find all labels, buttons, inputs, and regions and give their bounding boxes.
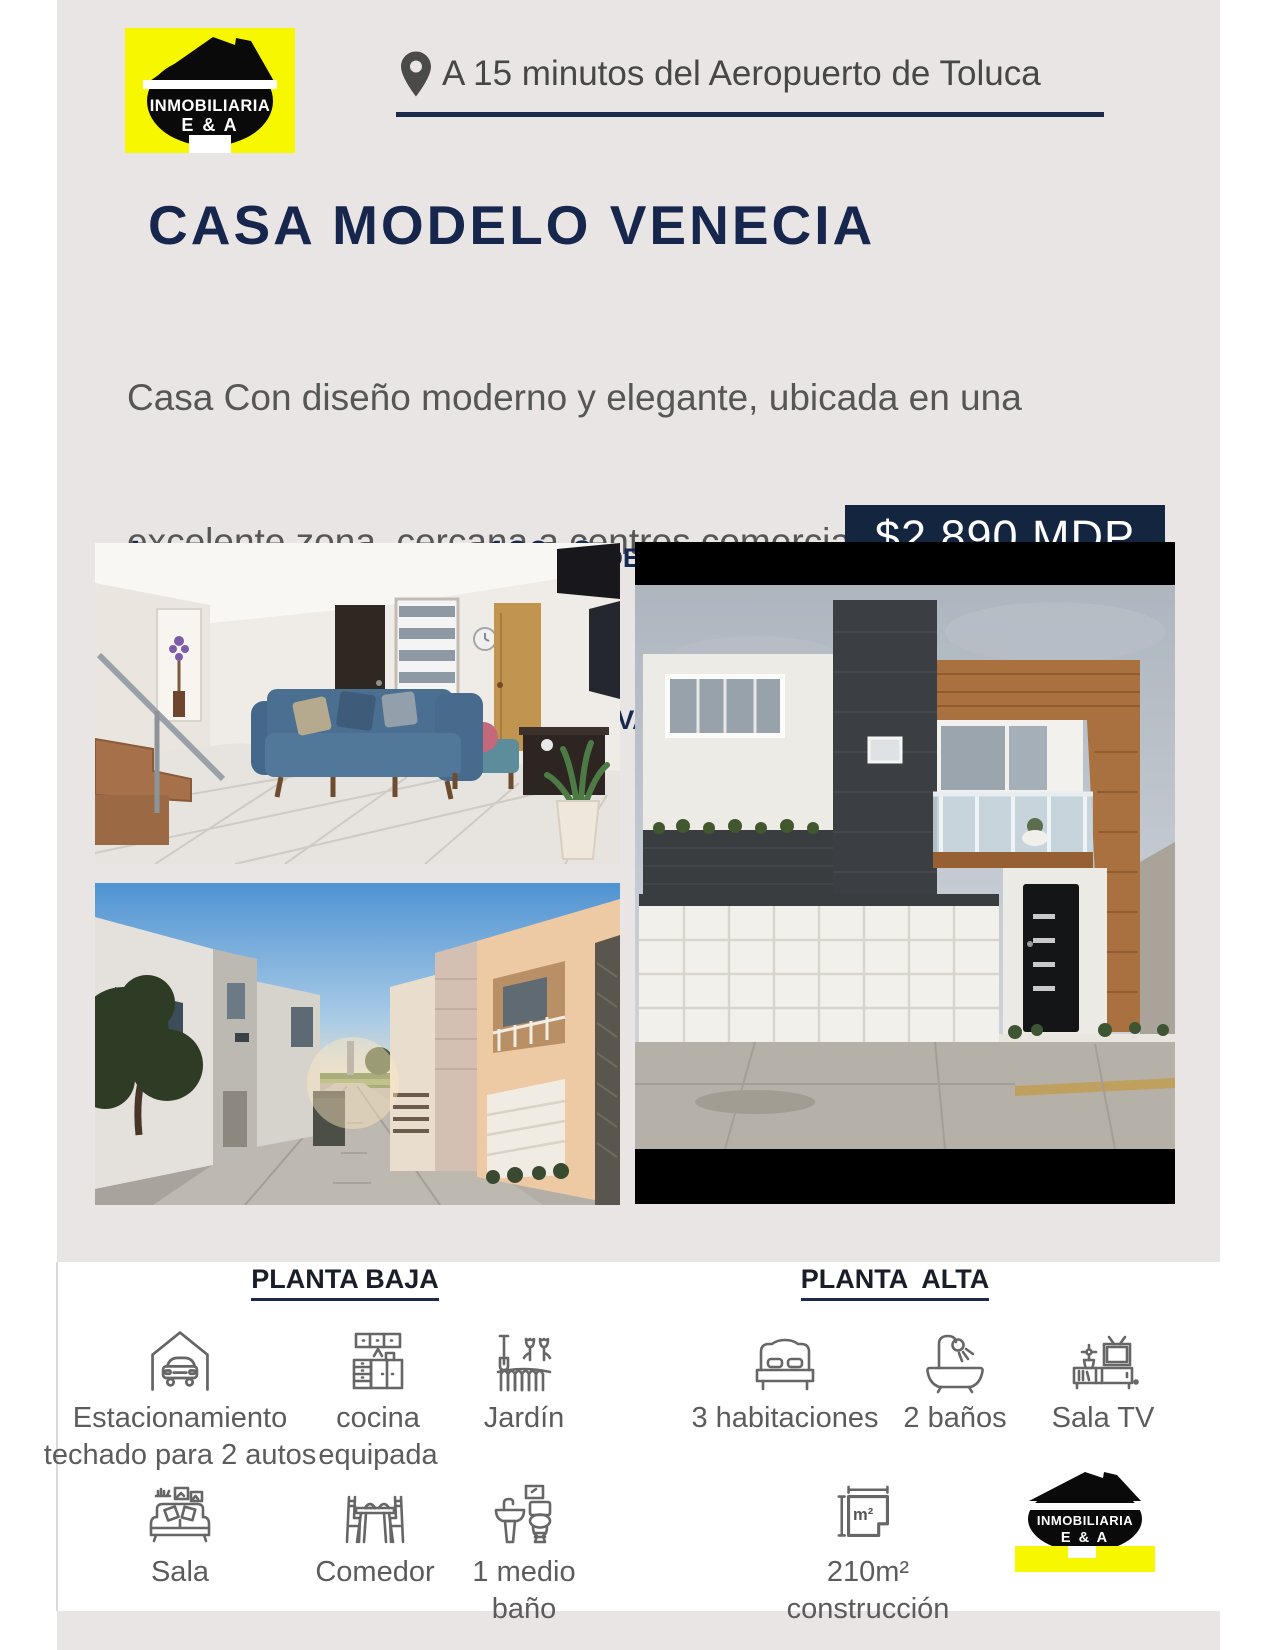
dining-table-icon xyxy=(334,1470,416,1552)
logo-text-line1: INMOBILIARIA xyxy=(1037,1513,1133,1528)
page-title: CASA MODELO VENECIA xyxy=(148,193,875,257)
brand-logo-bottom: INMOBILIARIA E & A xyxy=(1015,1467,1155,1572)
feature-tv-room: Sala TV xyxy=(1033,1316,1173,1435)
flyer-page: INMOBILIARIA E & A A 15 minutos del Aero… xyxy=(0,0,1275,1650)
bed-icon xyxy=(742,1316,828,1398)
feature-label: Jardín xyxy=(484,1401,565,1435)
feature-label: Sala xyxy=(151,1555,209,1589)
feature-bathrooms: 2 baños xyxy=(890,1316,1020,1435)
feature-label: 3 habitaciones xyxy=(691,1401,878,1435)
feature-label: 1 medio xyxy=(472,1555,575,1589)
logo-text-line1: INMOBILIARIA xyxy=(150,97,271,115)
feature-label: equipada xyxy=(318,1438,437,1472)
brand-logo: INMOBILIARIA E & A xyxy=(125,28,295,153)
feature-label: Sala TV xyxy=(1052,1401,1155,1435)
brand-logo-bottom-graphic: INMOBILIARIA E & A xyxy=(1015,1467,1155,1572)
half-bath-icon xyxy=(487,1470,561,1552)
planta-alta-header: PLANTA ALTA xyxy=(785,1264,1005,1301)
feature-label: cocina xyxy=(336,1401,420,1435)
tv-stand-icon xyxy=(1062,1316,1144,1398)
area-icon-text: m² xyxy=(853,1505,874,1524)
logo-text-line2: E & A xyxy=(181,115,238,135)
feature-kitchen: cocina equipada xyxy=(303,1316,453,1472)
living-room-photo xyxy=(95,543,620,864)
feature-label: baño xyxy=(492,1592,557,1626)
feature-bedrooms: 3 habitaciones xyxy=(690,1316,880,1435)
feature-dining-room: Comedor xyxy=(300,1470,450,1589)
carport-icon xyxy=(142,1316,218,1398)
street-photo xyxy=(95,883,620,1205)
bathtub-icon xyxy=(916,1316,994,1398)
feature-label: Estacionamiento xyxy=(73,1401,287,1435)
kitchen-icon xyxy=(342,1316,414,1398)
floor-area-icon: m² xyxy=(833,1470,903,1552)
garden-icon xyxy=(488,1316,560,1398)
feature-label: techado para 2 autos xyxy=(44,1438,316,1472)
feature-construction-area: m² 210m² construcción xyxy=(783,1470,953,1626)
sofa-icon xyxy=(141,1470,219,1552)
feature-living-room: Sala xyxy=(110,1470,250,1589)
feature-label: construcción xyxy=(787,1592,950,1626)
facade-photo-art xyxy=(635,542,1175,1204)
header-underline xyxy=(396,112,1104,117)
feature-label: Comedor xyxy=(315,1555,434,1589)
feature-carport: Estacionamiento techado para 2 autos xyxy=(55,1316,305,1472)
location-text: A 15 minutos del Aeropuerto de Toluca xyxy=(442,54,1041,94)
feature-garden: Jardín xyxy=(449,1316,599,1435)
description-line: Casa Con diseño moderno y elegante, ubic… xyxy=(127,374,1052,422)
location-pin-icon xyxy=(398,50,434,98)
planta-baja-header: PLANTA BAJA xyxy=(235,1264,455,1301)
logo-text-line2: E & A xyxy=(1061,1530,1109,1546)
location-header: A 15 minutos del Aeropuerto de Toluca xyxy=(398,50,1041,98)
feature-half-bath: 1 medio baño xyxy=(459,1470,589,1626)
brand-logo-graphic: INMOBILIARIA E & A xyxy=(125,28,295,153)
feature-label: 210m² xyxy=(827,1555,909,1589)
feature-label: 2 baños xyxy=(903,1401,1006,1435)
